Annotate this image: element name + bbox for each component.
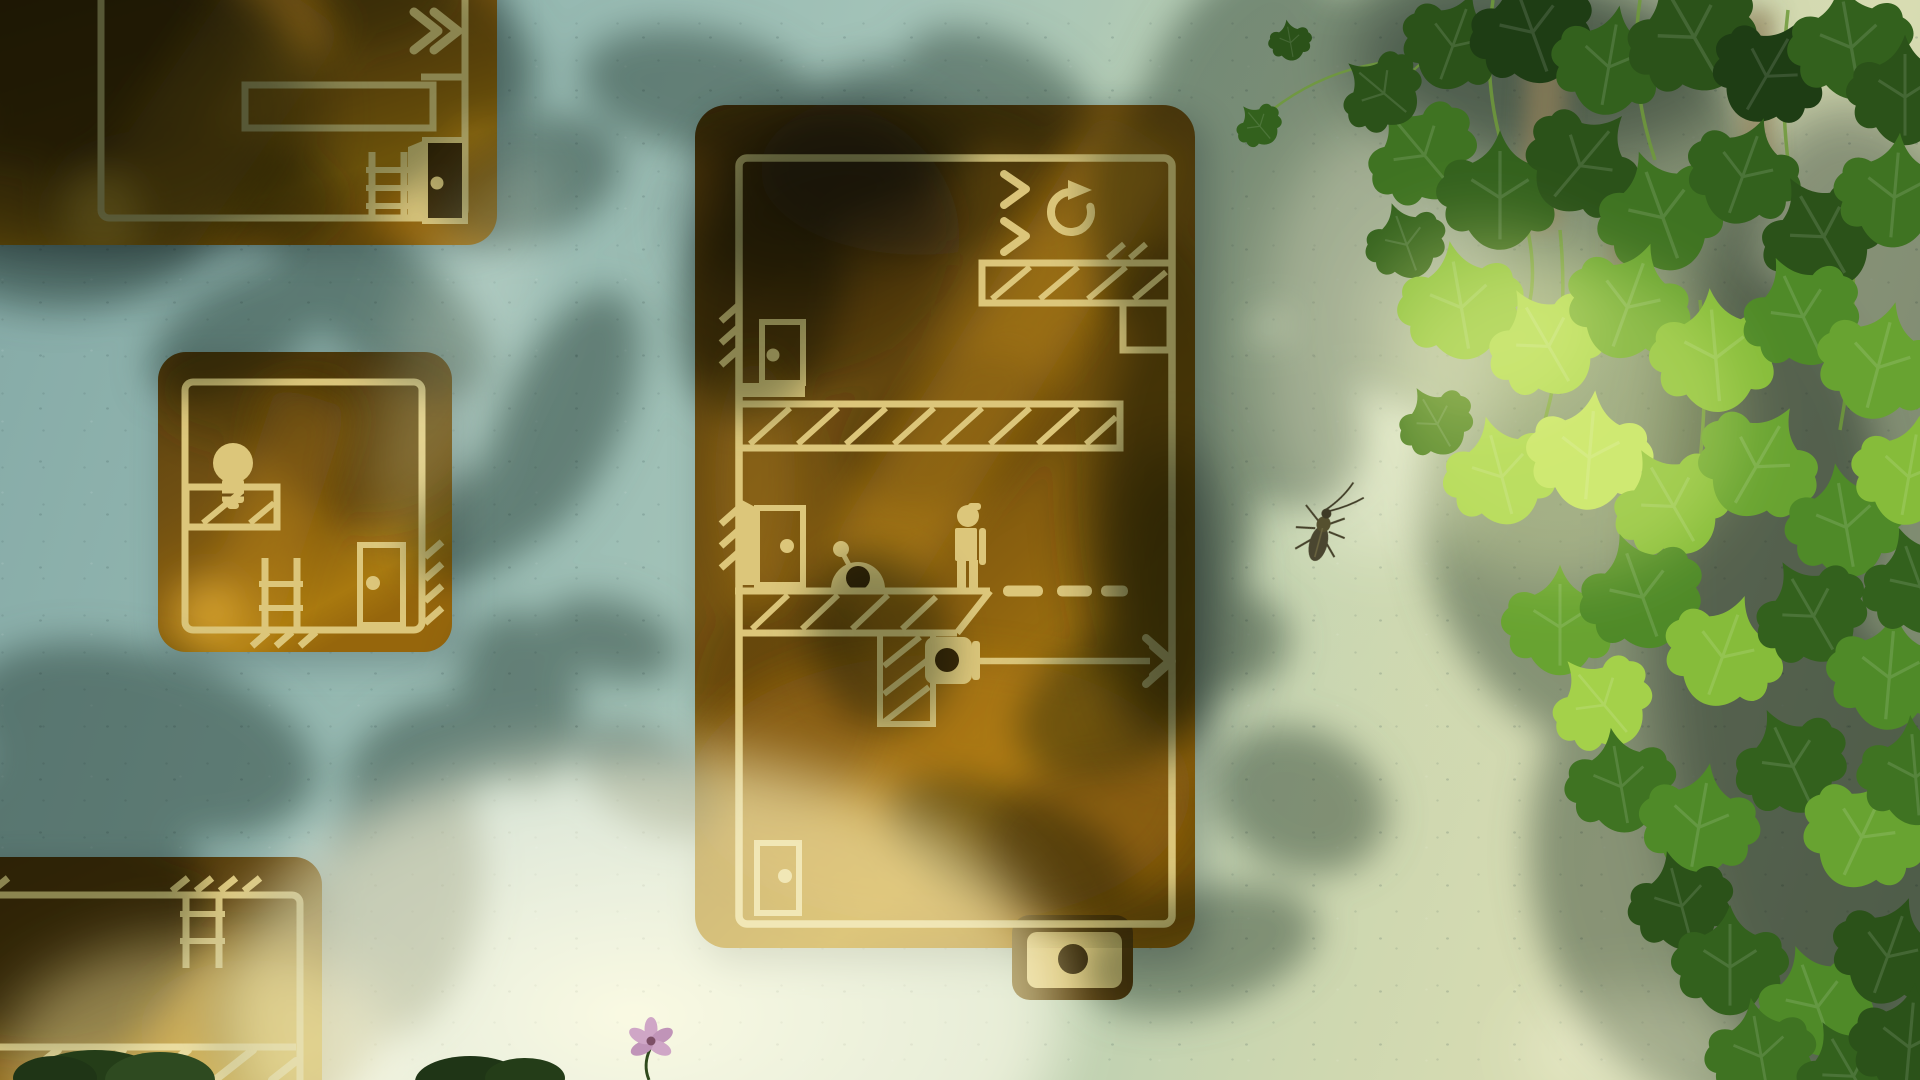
door-knob bbox=[780, 539, 794, 553]
game-screen[interactable] bbox=[0, 0, 1920, 1080]
flower-center bbox=[647, 1037, 656, 1046]
door-knob bbox=[366, 576, 380, 590]
scene-layers bbox=[0, 0, 1920, 1080]
